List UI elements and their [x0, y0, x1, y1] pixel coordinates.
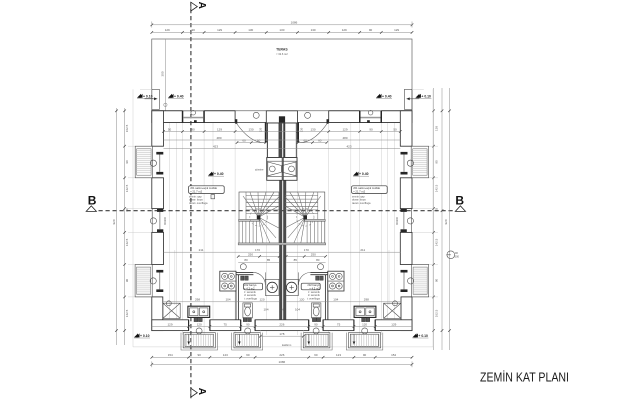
svg-text:90: 90	[192, 28, 196, 32]
svg-text:z01 salon+açık mutfak: z01 salon+açık mutfak	[190, 186, 217, 190]
svg-text:+ 0.40: + 0.40	[214, 172, 224, 176]
svg-text:123: 123	[223, 353, 228, 357]
svg-text:90: 90	[363, 353, 367, 357]
svg-text:170: 170	[255, 248, 260, 252]
svg-text:+ 0.10: + 0.10	[418, 334, 428, 338]
svg-text:90/200: 90/200	[163, 216, 167, 224]
svg-text:75: 75	[337, 323, 341, 327]
svg-text:100: 100	[279, 307, 284, 311]
svg-text:142.5: 142.5	[434, 238, 438, 246]
svg-text:226: 226	[279, 323, 284, 327]
svg-text:120: 120	[362, 323, 367, 327]
svg-text:≈ 21.7 m2: ≈ 21.7 m2	[353, 189, 365, 193]
svg-text:80: 80	[244, 258, 248, 262]
svg-text:300: 300	[161, 71, 165, 76]
svg-text:162.5: 162.5	[125, 124, 129, 132]
svg-text:130: 130	[279, 28, 284, 32]
svg-text:60: 60	[314, 353, 318, 357]
svg-text:90: 90	[369, 28, 373, 32]
svg-text:423: 423	[346, 144, 351, 148]
svg-text:920: 920	[112, 219, 116, 224]
svg-text:90: 90	[125, 160, 129, 164]
svg-text:90/200: 90/200	[395, 216, 399, 224]
svg-text:104: 104	[333, 298, 338, 302]
svg-text:200: 200	[455, 255, 460, 259]
svg-text:104: 104	[295, 307, 300, 311]
svg-text:90: 90	[125, 208, 129, 212]
svg-text:129: 129	[342, 127, 347, 131]
svg-text:≈ 4.3 m2: ≈ 4.3 m2	[244, 286, 255, 290]
svg-text:211: 211	[199, 248, 204, 252]
svg-text:90: 90	[434, 279, 438, 283]
svg-text:60: 60	[242, 139, 246, 143]
svg-text:z01 salon+açık mutfak: z01 salon+açık mutfak	[353, 186, 380, 190]
svg-text:60: 60	[318, 139, 322, 143]
svg-text:90: 90	[369, 127, 373, 131]
svg-text:TERAS: TERAS	[276, 48, 288, 52]
svg-text:1086: 1086	[279, 360, 286, 364]
svg-text:90: 90	[246, 323, 250, 327]
svg-text:+ 0.40: + 0.40	[382, 94, 392, 98]
svg-text:154: 154	[168, 353, 173, 357]
svg-text:+ 0.40: + 0.40	[174, 94, 184, 98]
svg-text:kaldırım: kaldırım	[282, 343, 291, 347]
svg-text:50: 50	[168, 127, 172, 131]
svg-text:298: 298	[195, 298, 200, 302]
svg-text:154: 154	[391, 353, 396, 357]
svg-text:≈ 4.3 m2: ≈ 4.3 m2	[309, 286, 320, 290]
svg-text:920: 920	[444, 219, 448, 224]
svg-text:480: 480	[216, 136, 221, 140]
svg-text:129: 129	[217, 127, 222, 131]
svg-text:142.5: 142.5	[125, 309, 129, 317]
svg-text:tavan: overfloga: tavan: overfloga	[352, 201, 371, 205]
svg-text:50: 50	[393, 127, 397, 131]
svg-text:+ 0.40: + 0.40	[359, 172, 369, 176]
svg-text:t: overfloga: t: overfloga	[244, 296, 257, 300]
svg-text:130: 130	[248, 127, 253, 131]
svg-text:tavan: overfloga: tavan: overfloga	[189, 201, 208, 205]
svg-text:129: 129	[391, 323, 396, 327]
svg-text:B: B	[455, 194, 464, 208]
svg-text:104: 104	[263, 307, 268, 311]
svg-text:90: 90	[434, 160, 438, 164]
svg-text:162.5: 162.5	[434, 309, 438, 317]
svg-text:129: 129	[217, 28, 222, 32]
svg-text:129: 129	[394, 28, 399, 32]
svg-text:60: 60	[246, 353, 250, 357]
svg-text:şömine: şömine	[255, 168, 264, 172]
svg-text:138: 138	[434, 126, 438, 131]
svg-text:170: 170	[304, 248, 309, 252]
svg-text:226: 226	[279, 353, 284, 357]
svg-text:120: 120	[197, 323, 202, 327]
svg-text:178: 178	[279, 332, 284, 336]
svg-text:≈ 21.7 m2: ≈ 21.7 m2	[190, 189, 202, 193]
svg-text:90: 90	[198, 353, 202, 357]
svg-text:90: 90	[125, 279, 129, 283]
svg-text:+ 0.10: + 0.10	[140, 334, 150, 338]
svg-text:80: 80	[316, 258, 320, 262]
svg-text:142.5: 142.5	[434, 184, 438, 192]
svg-text:129: 129	[165, 28, 170, 32]
svg-text:130: 130	[248, 28, 253, 32]
svg-text:+ 0.10: + 0.10	[421, 94, 431, 98]
svg-text:A: A	[196, 2, 207, 9]
svg-text:120: 120	[299, 298, 304, 302]
svg-text:90: 90	[314, 323, 318, 327]
svg-text:1086: 1086	[291, 21, 298, 25]
svg-text:211: 211	[360, 248, 365, 252]
svg-text:104: 104	[225, 298, 230, 302]
svg-text:130: 130	[310, 127, 315, 131]
svg-text:B: B	[88, 194, 97, 208]
svg-text:ZEMİN KAT PLANI: ZEMİN KAT PLANI	[480, 370, 569, 385]
svg-text:129: 129	[167, 323, 172, 327]
svg-text:85: 85	[267, 258, 271, 262]
svg-text:142.5: 142.5	[125, 238, 129, 246]
svg-text:+ 0.10: + 0.10	[143, 94, 153, 98]
svg-text:≈ 32.6 m2: ≈ 32.6 m2	[276, 52, 288, 56]
svg-text:298: 298	[364, 298, 369, 302]
svg-text:60: 60	[257, 139, 261, 143]
svg-text:423: 423	[213, 144, 218, 148]
svg-text:60: 60	[304, 139, 308, 143]
svg-text:129: 129	[342, 28, 347, 32]
svg-text:t: overfloga: t: overfloga	[307, 296, 320, 300]
svg-text:90: 90	[434, 208, 438, 212]
svg-text:130: 130	[311, 28, 316, 32]
svg-text:142.5: 142.5	[125, 184, 129, 192]
svg-text:75: 75	[224, 323, 228, 327]
svg-text:A: A	[196, 388, 207, 395]
svg-text:120: 120	[259, 298, 264, 302]
svg-text:90: 90	[191, 127, 195, 131]
svg-text:85: 85	[294, 258, 298, 262]
svg-text:250: 250	[248, 252, 253, 256]
svg-text:123: 123	[336, 353, 341, 357]
svg-text:480: 480	[342, 136, 347, 140]
svg-text:250: 250	[311, 252, 316, 256]
